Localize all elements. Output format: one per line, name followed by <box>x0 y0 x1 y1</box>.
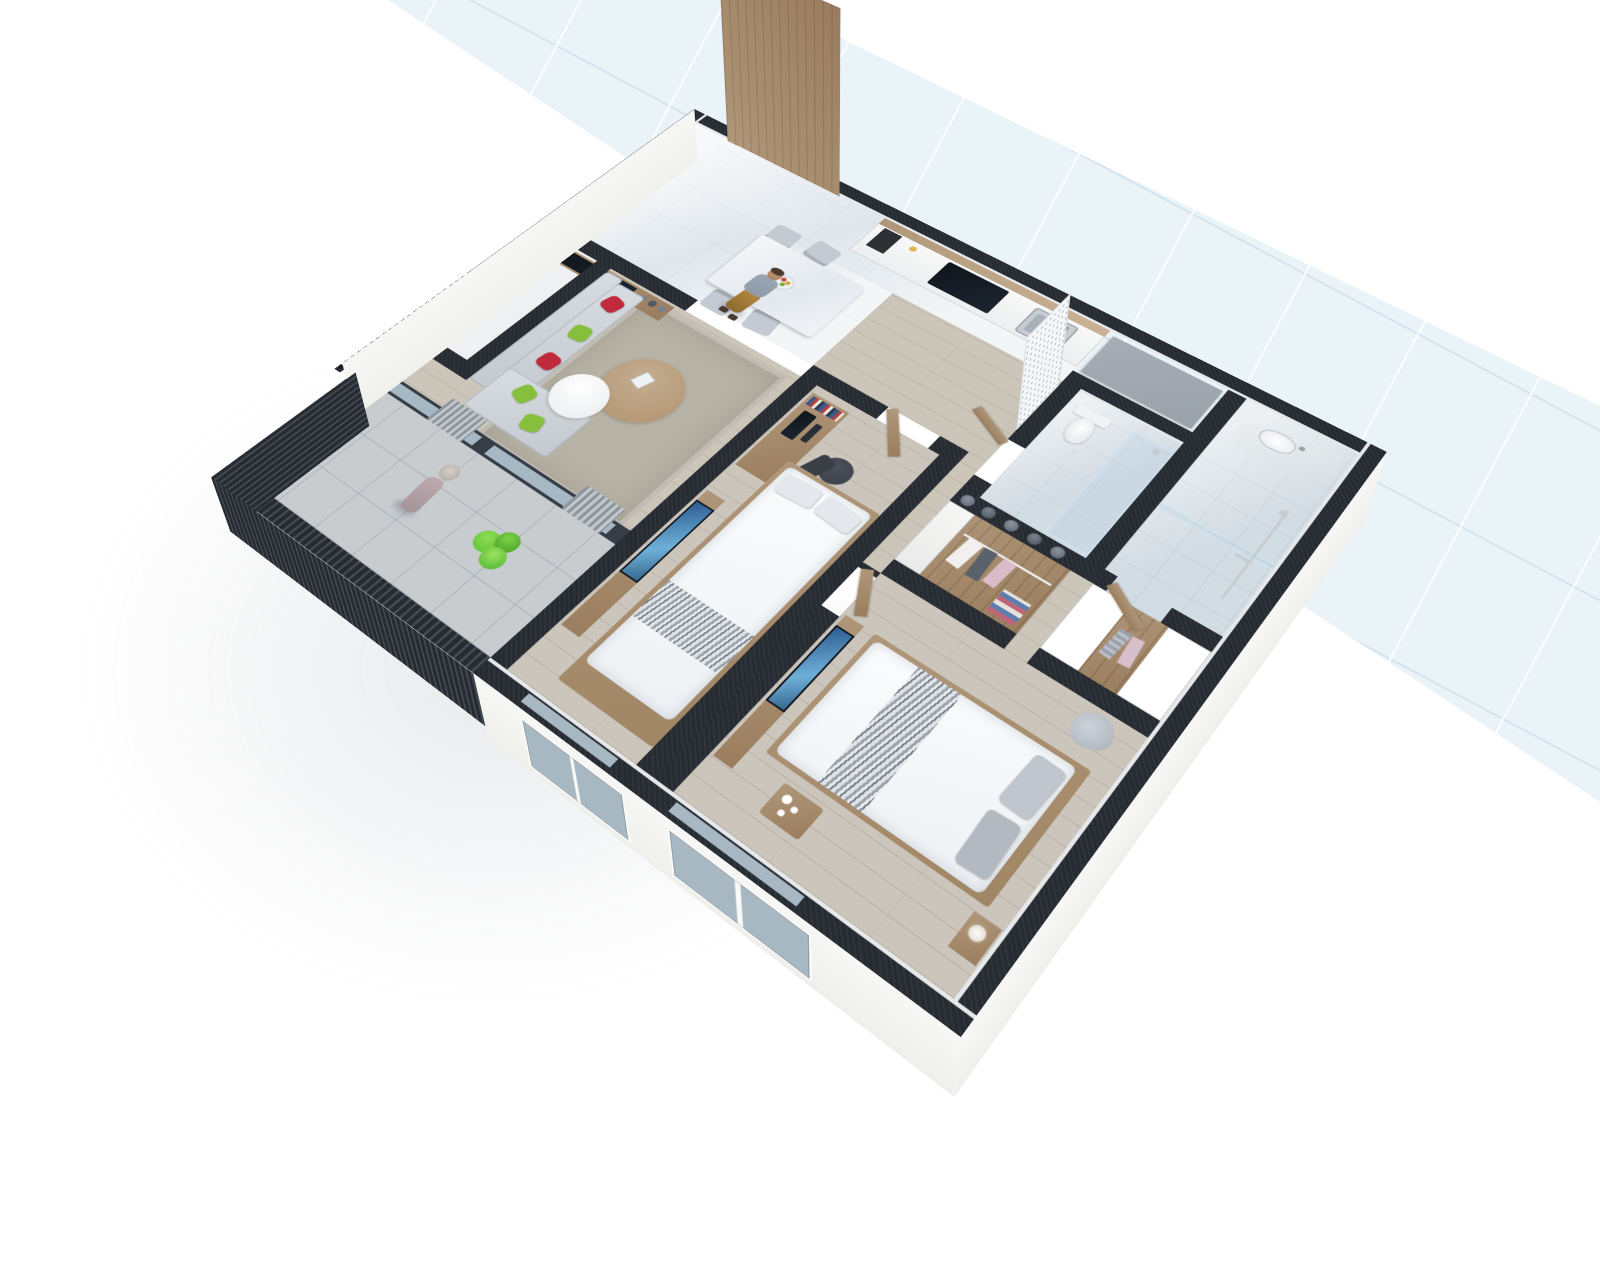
render-stage <box>0 0 1600 1280</box>
plan-flat-layer <box>198 109 1387 1037</box>
apartment-plan <box>198 109 1387 1037</box>
scene-3d-viewport <box>0 0 1600 1280</box>
bedroom1-door-leaf <box>886 409 900 457</box>
